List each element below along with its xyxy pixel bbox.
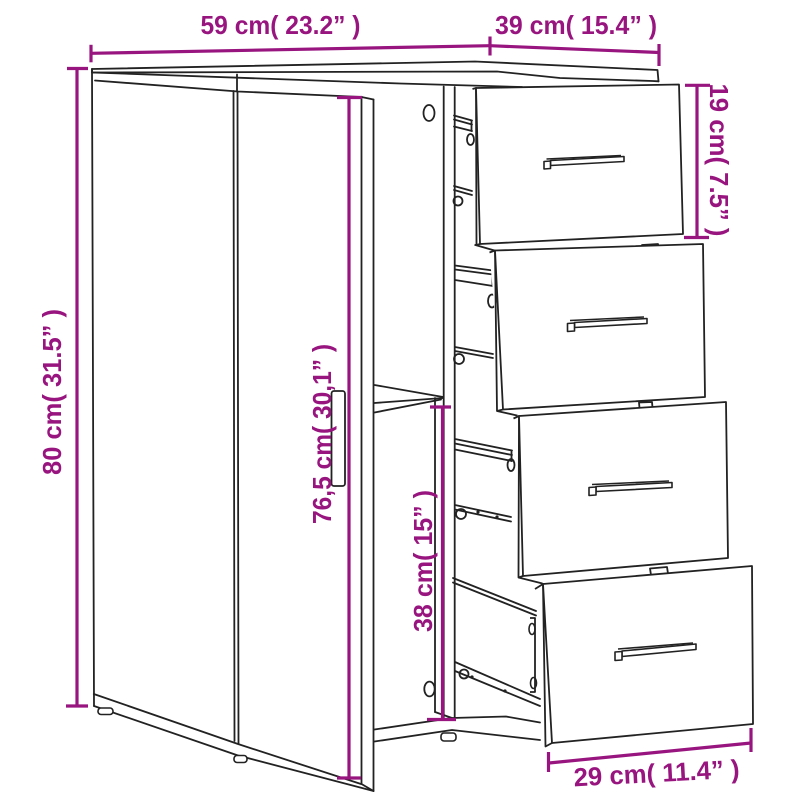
svg-text:19 cm( 7.5” ): 19 cm( 7.5” ) bbox=[704, 84, 734, 237]
svg-text:38 cm( 15” ): 38 cm( 15” ) bbox=[408, 490, 438, 632]
svg-text:80 cm( 31.5” ): 80 cm( 31.5” ) bbox=[37, 309, 67, 475]
svg-text:39 cm( 15.4” ): 39 cm( 15.4” ) bbox=[495, 10, 657, 40]
svg-text:76,5 cm( 30,1” ): 76,5 cm( 30,1” ) bbox=[307, 344, 337, 524]
svg-text:59 cm( 23.2” ): 59 cm( 23.2” ) bbox=[201, 10, 361, 40]
